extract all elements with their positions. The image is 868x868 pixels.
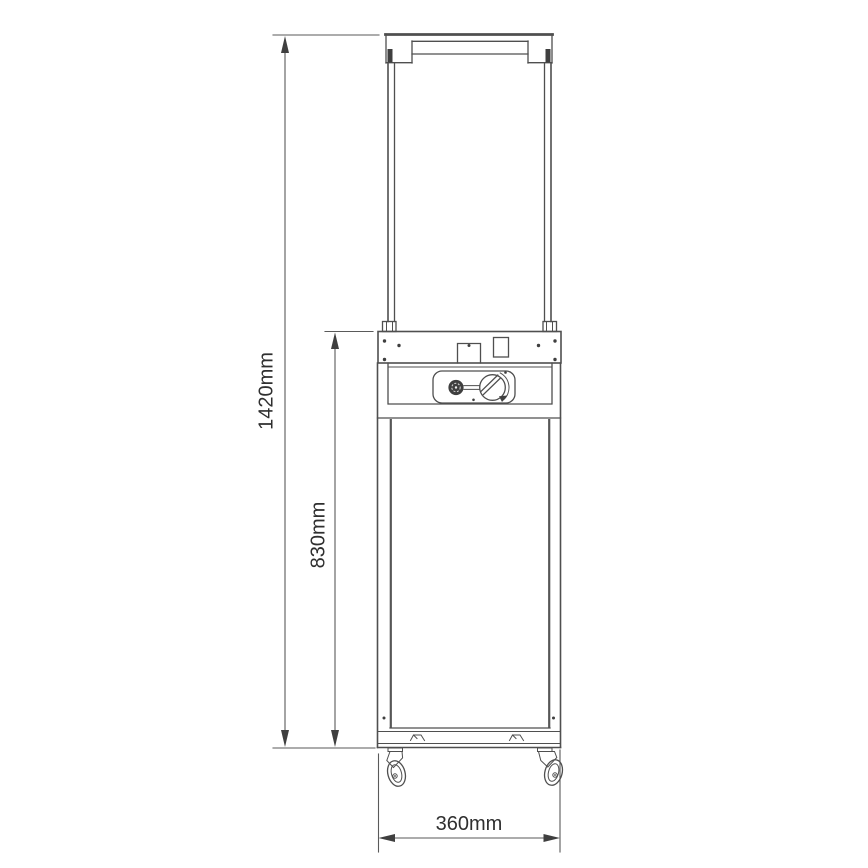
heater-control-section [388, 363, 552, 404]
screw-dot [383, 339, 386, 342]
frame-post-inner-lines [395, 63, 545, 322]
post-foot-left [383, 322, 397, 332]
cabinet-door-panel-edges [391, 419, 549, 728]
rotation-arrowhead [499, 396, 508, 403]
arrowhead-up [281, 36, 289, 53]
wheel-axle-dot [554, 774, 556, 776]
wheel-axle-dot [394, 775, 396, 777]
rotation-dot [504, 371, 507, 374]
ignition-button [448, 380, 463, 395]
screw-dot [537, 344, 540, 347]
base-band-lines [378, 732, 561, 744]
post-foot-right [543, 322, 557, 332]
housing-vent-plate [494, 338, 509, 358]
wheel-outer [542, 758, 565, 788]
caster-wheel [385, 759, 408, 789]
knob-link-bar [464, 386, 480, 390]
caster-right [538, 748, 566, 787]
post-top-mark-left [388, 49, 393, 63]
post-top-mark-right [546, 49, 551, 63]
screw-dot [552, 717, 555, 720]
screw-dot [383, 717, 386, 720]
ignition-button-center [455, 386, 457, 388]
dimension-label-width: 360mm [436, 813, 503, 835]
post-foot-left-detail [387, 322, 393, 332]
dimension-label-total-height: 1420mm [256, 352, 278, 430]
housing-outline [378, 332, 561, 364]
arrowhead-down [331, 730, 339, 747]
screw-dot [553, 358, 556, 361]
dimension-label-body-height: 830mm [308, 502, 330, 569]
control-band-sides [388, 363, 552, 404]
caster-left [385, 748, 408, 788]
base-clip-left [411, 735, 425, 741]
rotation-dot [472, 399, 475, 402]
dimension-body-height: 830mm [308, 332, 374, 748]
heater-top-cap [386, 34, 553, 63]
screw-dot [553, 339, 556, 342]
cap-recess-lines [412, 41, 528, 54]
screw-dot [397, 344, 400, 347]
dimension-width: 360mm [379, 750, 561, 852]
notch-dot [468, 344, 471, 347]
caster-mount-plate [538, 748, 553, 752]
frame-post-outer-lines [388, 63, 551, 322]
dimension-total-height: 1420mm [256, 35, 380, 748]
wheel-inner [389, 764, 403, 784]
heater-burner-housing [378, 332, 561, 364]
arrowhead-right [544, 834, 561, 842]
gas-control-knob [472, 371, 509, 402]
arrowhead-up [331, 333, 339, 350]
cap-step-edges [412, 41, 528, 63]
base-clip-right [510, 735, 524, 741]
cap-side-edges [386, 34, 552, 63]
heater-glass-frame [383, 63, 557, 332]
patio-heater-dimension-drawing: 1420mm 830mm 360mm [0, 0, 868, 868]
screw-dot [383, 358, 386, 361]
wheel-inner [546, 763, 560, 783]
caster-wheel [542, 758, 565, 788]
caster-mount-plate [388, 748, 403, 752]
arrowhead-left [379, 834, 396, 842]
post-foot-right-detail [547, 322, 553, 332]
cabinet-side-walls [378, 363, 561, 748]
arrowhead-down [281, 730, 289, 747]
heater-cabinet [378, 363, 561, 748]
technical-drawing-page: 1420mm 830mm 360mm [0, 0, 868, 868]
wheel-outer [385, 759, 408, 789]
